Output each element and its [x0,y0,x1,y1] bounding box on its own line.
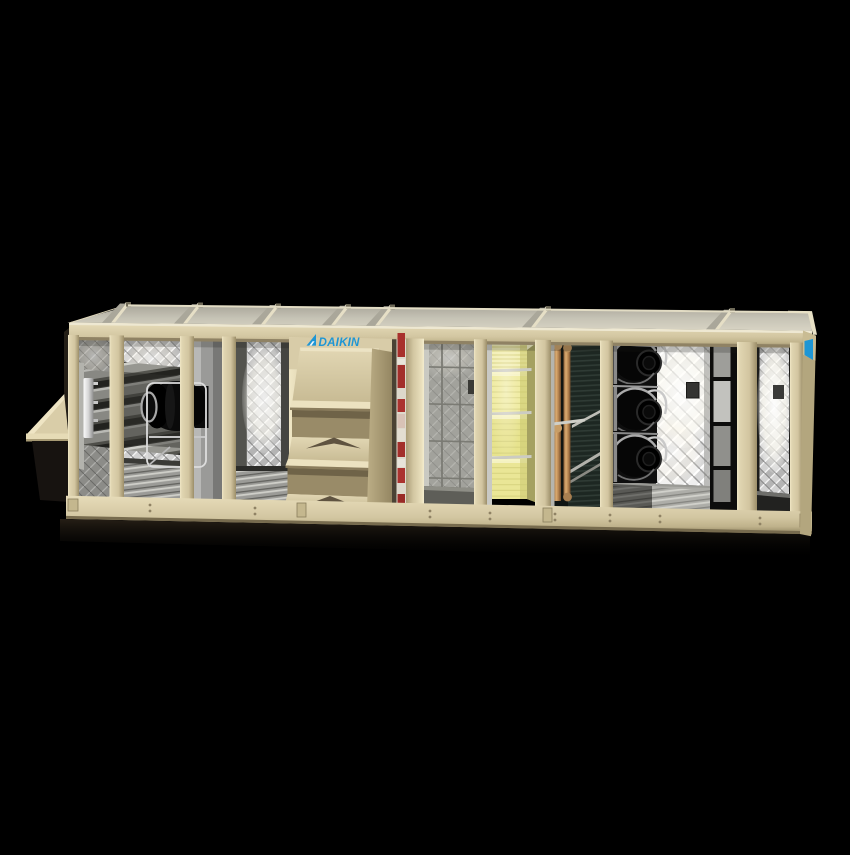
svg-text:DAIKIN: DAIKIN [319,336,361,349]
